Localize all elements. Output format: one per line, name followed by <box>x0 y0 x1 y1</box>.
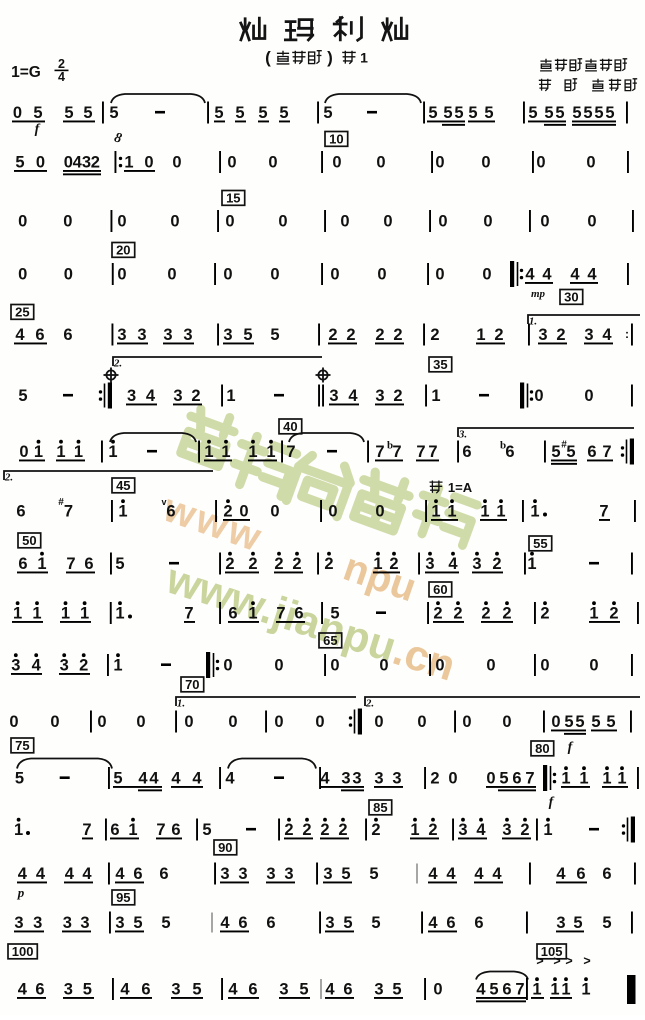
svg-text:7: 7 <box>515 981 524 999</box>
svg-text:0: 0 <box>50 713 59 731</box>
svg-text:6: 6 <box>294 605 303 623</box>
svg-text:0: 0 <box>117 213 126 231</box>
svg-text:0: 0 <box>340 213 349 231</box>
svg-text:3: 3 <box>374 981 383 999</box>
svg-text:5: 5 <box>15 770 24 788</box>
svg-text:6: 6 <box>84 555 93 573</box>
svg-text:2: 2 <box>320 821 329 839</box>
svg-text:1: 1 <box>476 326 485 344</box>
svg-text:5: 5 <box>499 770 508 788</box>
svg-text:5: 5 <box>602 914 611 932</box>
svg-text:45: 45 <box>116 478 130 493</box>
svg-text:0: 0 <box>97 713 106 731</box>
svg-text:2: 2 <box>223 503 232 521</box>
svg-text:4: 4 <box>556 865 566 883</box>
svg-text:2: 2 <box>481 605 490 623</box>
svg-text:4: 4 <box>542 266 552 284</box>
svg-text:2: 2 <box>292 555 301 573</box>
svg-text:2: 2 <box>58 57 65 71</box>
svg-text:4: 4 <box>602 326 612 344</box>
svg-text:1: 1 <box>530 503 539 521</box>
svg-text:5: 5 <box>573 914 582 932</box>
svg-text:3: 3 <box>115 914 124 932</box>
svg-text:10: 10 <box>329 132 343 147</box>
svg-text:5: 5 <box>555 104 564 122</box>
svg-text:1: 1 <box>248 443 257 461</box>
svg-text:3: 3 <box>323 865 332 883</box>
svg-text:3: 3 <box>502 821 511 839</box>
svg-text:1.: 1. <box>529 316 537 328</box>
svg-text:4: 4 <box>348 387 358 405</box>
svg-text:4: 4 <box>138 770 148 788</box>
svg-text:0: 0 <box>64 266 73 284</box>
svg-text:0: 0 <box>274 657 283 675</box>
svg-text:4: 4 <box>428 865 438 883</box>
svg-text:5: 5 <box>161 914 170 932</box>
svg-text:3: 3 <box>458 821 467 839</box>
svg-text:3: 3 <box>279 981 288 999</box>
svg-text:1: 1 <box>617 770 626 788</box>
svg-text:5: 5 <box>109 104 118 122</box>
svg-text:1: 1 <box>579 770 588 788</box>
svg-text:5: 5 <box>594 104 603 122</box>
svg-text:4: 4 <box>525 266 535 284</box>
svg-text:6: 6 <box>35 981 44 999</box>
svg-text:5: 5 <box>330 605 339 623</box>
svg-text:1=G: 1=G <box>11 64 41 81</box>
svg-text:4: 4 <box>320 770 330 788</box>
svg-text:1: 1 <box>204 443 213 461</box>
svg-text:2: 2 <box>191 387 200 405</box>
svg-text:0: 0 <box>448 770 457 788</box>
svg-text:1: 1 <box>410 821 419 839</box>
svg-text:15: 15 <box>226 191 240 206</box>
svg-text:3: 3 <box>341 770 350 788</box>
svg-text:>: > <box>536 954 543 968</box>
svg-text:1: 1 <box>480 503 489 521</box>
svg-text:5: 5 <box>564 713 573 731</box>
svg-text:5: 5 <box>299 981 308 999</box>
svg-text:0: 0 <box>63 213 72 231</box>
svg-text:0: 0 <box>462 713 471 731</box>
svg-text:5: 5 <box>115 555 124 573</box>
svg-text:7: 7 <box>156 821 165 839</box>
svg-text:6: 6 <box>248 981 257 999</box>
svg-text:5: 5 <box>83 981 92 999</box>
svg-text:5: 5 <box>133 914 142 932</box>
svg-text:4: 4 <box>474 865 484 883</box>
svg-text:60: 60 <box>433 582 447 597</box>
svg-text:0: 0 <box>278 213 287 231</box>
svg-text:3: 3 <box>64 981 73 999</box>
svg-text:0: 0 <box>483 213 492 231</box>
svg-text:5: 5 <box>468 104 477 122</box>
svg-text:6: 6 <box>141 981 150 999</box>
svg-text:1: 1 <box>602 770 611 788</box>
svg-text:0: 0 <box>540 213 549 231</box>
svg-text:20: 20 <box>116 243 130 258</box>
svg-text:5: 5 <box>83 104 92 122</box>
svg-text:4: 4 <box>476 981 486 999</box>
svg-text:3: 3 <box>223 326 232 344</box>
svg-text:2: 2 <box>430 326 439 344</box>
svg-text:3: 3 <box>14 914 23 932</box>
svg-text:5: 5 <box>575 713 584 731</box>
svg-text:6: 6 <box>110 821 119 839</box>
svg-text:1: 1 <box>61 605 70 623</box>
svg-text:>: > <box>583 954 590 968</box>
svg-text:6: 6 <box>512 770 521 788</box>
svg-text:1: 1 <box>32 605 41 623</box>
svg-text:5: 5 <box>270 326 279 344</box>
svg-text:1: 1 <box>248 605 257 623</box>
svg-text:4: 4 <box>18 865 28 883</box>
svg-text:4: 4 <box>428 914 438 932</box>
svg-text:6: 6 <box>16 503 25 521</box>
svg-text::: : <box>625 327 629 341</box>
svg-text:4: 4 <box>82 865 92 883</box>
svg-text:100: 100 <box>12 944 34 959</box>
svg-text:>: > <box>553 954 560 968</box>
svg-text:7: 7 <box>428 443 437 461</box>
svg-text:1: 1 <box>118 503 127 521</box>
svg-text:0: 0 <box>551 713 560 731</box>
svg-text:5: 5 <box>605 104 614 122</box>
svg-text:2: 2 <box>433 605 442 623</box>
svg-text:5: 5 <box>343 914 352 932</box>
svg-text:65: 65 <box>323 633 337 648</box>
svg-text:4: 4 <box>146 387 156 405</box>
svg-text:5: 5 <box>484 104 493 122</box>
svg-text:1: 1 <box>80 605 89 623</box>
svg-text:0: 0 <box>374 713 383 731</box>
svg-text:0: 0 <box>377 266 386 284</box>
svg-text:3: 3 <box>329 387 338 405</box>
svg-text:0: 0 <box>270 266 279 284</box>
svg-text:5: 5 <box>371 914 380 932</box>
svg-text:4: 4 <box>570 266 580 284</box>
svg-text:7: 7 <box>66 555 75 573</box>
svg-text:2: 2 <box>520 821 529 839</box>
svg-text:5: 5 <box>392 981 401 999</box>
svg-text:6: 6 <box>228 605 237 623</box>
svg-text:0: 0 <box>172 154 181 172</box>
svg-text:35: 35 <box>433 357 447 372</box>
svg-text:0: 0 <box>383 213 392 231</box>
svg-text:6: 6 <box>238 914 247 932</box>
svg-text:0: 0 <box>64 154 73 172</box>
svg-text:0: 0 <box>167 266 176 284</box>
svg-text:0: 0 <box>332 154 341 172</box>
svg-text:5: 5 <box>341 865 350 883</box>
svg-text:2: 2 <box>502 605 511 623</box>
svg-text:3: 3 <box>171 981 180 999</box>
svg-text:7: 7 <box>184 605 193 623</box>
svg-text:3: 3 <box>352 770 361 788</box>
svg-text:0: 0 <box>534 387 543 405</box>
svg-text:90: 90 <box>218 840 232 855</box>
svg-text:1: 1 <box>543 821 552 839</box>
svg-text:5: 5 <box>202 821 211 839</box>
svg-text:0: 0 <box>486 657 495 675</box>
svg-text:5: 5 <box>15 154 24 172</box>
svg-text:0: 0 <box>18 213 27 231</box>
svg-text:0: 0 <box>486 770 495 788</box>
svg-text:5: 5 <box>443 104 452 122</box>
svg-text:0: 0 <box>144 154 153 172</box>
svg-text:1: 1 <box>561 981 570 999</box>
svg-text:5: 5 <box>428 104 437 122</box>
svg-text:1: 1 <box>447 503 456 521</box>
svg-text:3: 3 <box>425 555 434 573</box>
svg-text:1: 1 <box>113 657 122 675</box>
svg-text:7: 7 <box>602 443 611 461</box>
svg-text:2: 2 <box>284 821 293 839</box>
svg-text:30: 30 <box>564 290 578 305</box>
svg-text:1: 1 <box>373 555 382 573</box>
svg-text:2: 2 <box>393 387 402 405</box>
svg-text:4: 4 <box>120 981 130 999</box>
svg-text:4: 4 <box>587 266 597 284</box>
svg-text:3: 3 <box>375 387 384 405</box>
svg-text:0: 0 <box>438 213 447 231</box>
svg-text:0: 0 <box>228 713 237 731</box>
svg-text:0: 0 <box>225 213 234 231</box>
svg-text:5: 5 <box>323 104 332 122</box>
svg-text:4: 4 <box>171 770 181 788</box>
svg-text:3: 3 <box>472 555 481 573</box>
svg-text:2: 2 <box>274 555 283 573</box>
svg-text:4: 4 <box>15 326 25 344</box>
svg-text:0: 0 <box>117 266 126 284</box>
svg-text:4: 4 <box>115 865 125 883</box>
svg-text:7: 7 <box>416 443 425 461</box>
svg-text:5: 5 <box>192 981 201 999</box>
svg-text:0: 0 <box>19 443 28 461</box>
svg-text:0: 0 <box>433 981 442 999</box>
svg-text:4: 4 <box>36 865 46 883</box>
svg-text:0: 0 <box>589 657 598 675</box>
svg-text:5: 5 <box>566 443 575 461</box>
svg-text:0: 0 <box>417 713 426 731</box>
svg-text:3: 3 <box>63 914 72 932</box>
svg-text:2: 2 <box>453 605 462 623</box>
svg-text:2.: 2. <box>4 472 13 484</box>
svg-text:3: 3 <box>325 914 334 932</box>
svg-text:2: 2 <box>225 555 234 573</box>
svg-text:7: 7 <box>286 443 295 461</box>
svg-text:0: 0 <box>18 266 27 284</box>
svg-text:0: 0 <box>375 503 384 521</box>
svg-text:3: 3 <box>117 326 126 344</box>
svg-text:5: 5 <box>572 104 581 122</box>
svg-text:5: 5 <box>33 104 42 122</box>
svg-text:>: > <box>565 954 572 968</box>
svg-text:1: 1 <box>581 981 590 999</box>
svg-text:1: 1 <box>550 981 559 999</box>
svg-text:1: 1 <box>527 555 536 573</box>
svg-text:2: 2 <box>393 326 402 344</box>
svg-text:0: 0 <box>274 713 283 731</box>
svg-text:5: 5 <box>528 104 537 122</box>
svg-text:1: 1 <box>266 443 275 461</box>
svg-text:1=A: 1=A <box>448 480 473 495</box>
svg-text:5: 5 <box>243 326 252 344</box>
svg-text:0: 0 <box>481 154 490 172</box>
svg-text:0: 0 <box>36 154 45 172</box>
svg-text:6: 6 <box>576 865 585 883</box>
svg-text:4: 4 <box>446 865 456 883</box>
svg-text:2: 2 <box>91 154 100 172</box>
svg-text:0: 0 <box>376 154 385 172</box>
svg-text:1: 1 <box>124 154 133 172</box>
svg-text:55: 55 <box>533 536 547 551</box>
svg-text:0: 0 <box>239 503 248 521</box>
svg-text:1: 1 <box>13 605 22 623</box>
svg-text:4: 4 <box>225 770 235 788</box>
svg-text:5: 5 <box>551 443 560 461</box>
svg-text:5: 5 <box>214 104 223 122</box>
svg-text:3: 3 <box>60 657 69 675</box>
svg-text:4: 4 <box>192 770 202 788</box>
svg-text:0: 0 <box>268 154 277 172</box>
svg-text:0: 0 <box>227 154 236 172</box>
svg-text:0: 0 <box>536 154 545 172</box>
svg-text:mp: mp <box>531 288 546 300</box>
svg-text:4: 4 <box>492 865 502 883</box>
svg-text:0: 0 <box>9 713 18 731</box>
svg-text:2: 2 <box>302 821 311 839</box>
svg-text:4: 4 <box>228 981 238 999</box>
svg-text:2: 2 <box>324 555 333 573</box>
svg-text:3: 3 <box>137 326 146 344</box>
svg-text:3: 3 <box>183 326 192 344</box>
svg-text:4: 4 <box>18 981 28 999</box>
svg-text:1: 1 <box>532 981 541 999</box>
svg-text:5: 5 <box>454 104 463 122</box>
svg-text:3: 3 <box>127 387 136 405</box>
svg-text:6: 6 <box>18 555 27 573</box>
svg-text:6: 6 <box>462 443 471 461</box>
svg-text:6: 6 <box>35 326 44 344</box>
svg-text:0: 0 <box>540 657 549 675</box>
svg-text:2: 2 <box>540 605 549 623</box>
svg-text:5: 5 <box>258 104 267 122</box>
svg-text:5: 5 <box>606 713 615 731</box>
svg-text:0: 0 <box>435 154 444 172</box>
svg-text:0: 0 <box>223 266 232 284</box>
svg-text:4: 4 <box>58 70 65 84</box>
svg-text:4: 4 <box>325 981 335 999</box>
svg-text:7: 7 <box>525 770 534 788</box>
svg-text:1: 1 <box>496 503 505 521</box>
svg-text:0: 0 <box>223 657 232 675</box>
svg-text:1: 1 <box>37 555 46 573</box>
svg-text:5: 5 <box>113 770 122 788</box>
svg-text:80: 80 <box>535 741 549 756</box>
svg-text:0: 0 <box>587 213 596 231</box>
svg-text:3: 3 <box>80 914 89 932</box>
svg-text:40: 40 <box>283 419 297 434</box>
svg-text:95: 95 <box>116 890 130 905</box>
svg-text:0: 0 <box>184 713 193 731</box>
svg-text:6: 6 <box>133 865 142 883</box>
svg-text:3: 3 <box>238 865 247 883</box>
svg-text:4: 4 <box>32 657 42 675</box>
svg-text:1: 1 <box>431 503 440 521</box>
svg-text:2.: 2. <box>365 698 374 710</box>
svg-text:5: 5 <box>235 104 244 122</box>
svg-text:): ) <box>327 48 333 67</box>
svg-text:2: 2 <box>79 657 88 675</box>
svg-text:1: 1 <box>34 443 43 461</box>
svg-text:1: 1 <box>56 443 65 461</box>
svg-text:3: 3 <box>556 914 565 932</box>
svg-text:3: 3 <box>11 657 20 675</box>
svg-text:6: 6 <box>166 503 175 521</box>
svg-text:0: 0 <box>136 713 145 731</box>
svg-text:6: 6 <box>159 865 168 883</box>
svg-text:0: 0 <box>435 266 444 284</box>
svg-text:5: 5 <box>583 104 592 122</box>
svg-text:25: 25 <box>15 305 29 320</box>
svg-text:1: 1 <box>108 443 117 461</box>
svg-text:5: 5 <box>591 713 600 731</box>
svg-text:2: 2 <box>556 326 565 344</box>
svg-text:0: 0 <box>482 266 491 284</box>
svg-text:6: 6 <box>505 443 514 461</box>
svg-text:85: 85 <box>373 800 387 815</box>
svg-text:0: 0 <box>586 154 595 172</box>
svg-text:0: 0 <box>270 503 279 521</box>
svg-text:3: 3 <box>266 865 275 883</box>
svg-text:5: 5 <box>64 104 73 122</box>
svg-text:3: 3 <box>82 154 91 172</box>
svg-text:(: ( <box>265 48 271 67</box>
svg-text:3: 3 <box>374 770 383 788</box>
svg-text:3: 3 <box>220 865 229 883</box>
svg-text:2: 2 <box>428 821 437 839</box>
svg-text:0: 0 <box>502 713 511 731</box>
svg-text:0: 0 <box>170 213 179 231</box>
svg-text:5: 5 <box>489 981 498 999</box>
svg-text:1: 1 <box>115 605 124 623</box>
svg-text:6: 6 <box>266 914 275 932</box>
svg-text:1: 1 <box>561 770 570 788</box>
svg-text:75: 75 <box>15 738 29 753</box>
svg-text:1: 1 <box>360 50 368 66</box>
svg-text:5: 5 <box>279 104 288 122</box>
svg-text:0: 0 <box>584 387 593 405</box>
svg-text:2: 2 <box>371 821 380 839</box>
svg-text:3: 3 <box>392 770 401 788</box>
svg-text:70: 70 <box>185 677 199 692</box>
svg-text:1: 1 <box>589 605 598 623</box>
svg-text:0: 0 <box>435 657 444 675</box>
svg-text:0: 0 <box>13 104 22 122</box>
svg-text:0: 0 <box>330 266 339 284</box>
svg-text:6: 6 <box>474 914 483 932</box>
svg-text:5: 5 <box>369 865 378 883</box>
svg-text:50: 50 <box>22 533 36 548</box>
svg-text:2: 2 <box>248 555 257 573</box>
svg-text:2: 2 <box>609 605 618 623</box>
svg-text:2.: 2. <box>113 358 122 370</box>
svg-text:1: 1 <box>74 443 83 461</box>
svg-text:0: 0 <box>328 503 337 521</box>
svg-text:4: 4 <box>476 821 486 839</box>
svg-text:3: 3 <box>584 326 593 344</box>
